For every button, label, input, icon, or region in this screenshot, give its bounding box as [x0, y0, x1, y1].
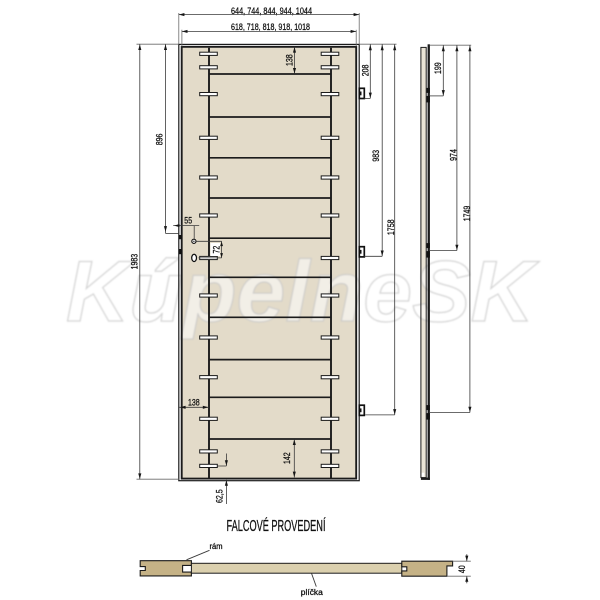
svg-text:55: 55: [184, 216, 192, 226]
svg-text:1749: 1749: [462, 206, 472, 222]
svg-text:62,5: 62,5: [214, 489, 224, 503]
svg-text:rám: rám: [210, 542, 223, 551]
svg-text:72: 72: [212, 246, 222, 254]
svg-text:40: 40: [457, 565, 467, 573]
svg-text:FALCOVÉ PROVEDENÍ: FALCOVÉ PROVEDENÍ: [227, 518, 326, 535]
svg-text:983: 983: [371, 150, 381, 162]
svg-text:618, 718, 818, 918, 1018: 618, 718, 818, 918, 1018: [231, 22, 310, 32]
svg-text:138: 138: [284, 54, 294, 66]
svg-text:974: 974: [449, 149, 459, 161]
svg-text:1758: 1758: [386, 220, 396, 236]
svg-text:199: 199: [433, 62, 443, 74]
svg-text:1983: 1983: [130, 254, 140, 270]
svg-text:142: 142: [282, 452, 292, 464]
svg-text:896: 896: [154, 134, 164, 146]
svg-text:138: 138: [188, 397, 200, 407]
svg-text:plíčka: plíčka: [301, 588, 323, 597]
svg-text:208: 208: [361, 65, 371, 77]
